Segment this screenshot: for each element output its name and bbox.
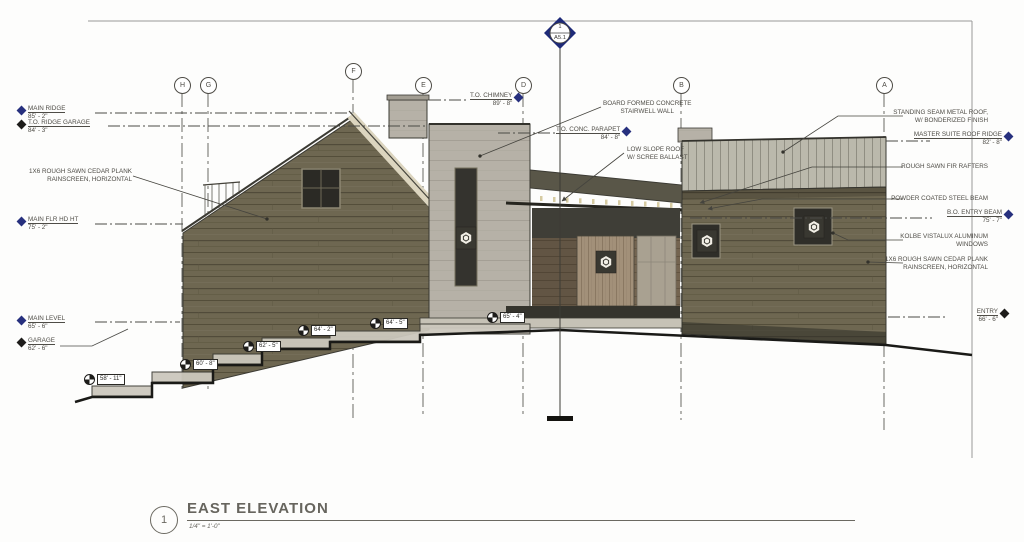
callout-standing-seam-roof: STANDING SEAM METAL ROOF, W/ BONDERIZED … xyxy=(885,109,988,124)
callout-cedar-rainscreen-right: 1X6 ROUGH SAWN CEDAR PLANK RAINSCREEN, H… xyxy=(885,256,988,271)
title-underline xyxy=(187,520,855,521)
callout-text: 1X6 ROUGH SAWN CEDAR PLANK xyxy=(28,168,132,176)
grid-letter: B xyxy=(679,82,684,89)
callout-cedar-rainscreen-left: 1X6 ROUGH SAWN CEDAR PLANK RAINSCREEN, H… xyxy=(28,168,132,183)
datum-value: 62' - 6" xyxy=(28,345,55,352)
datum-diamond-icon xyxy=(1000,309,1010,319)
datum-label: ENTRY xyxy=(977,308,998,316)
view-number-bubble: 1 xyxy=(150,506,178,534)
spot-dim-tag: 65' - 4" xyxy=(487,312,525,323)
datum-garage: GARAGE 62' - 6" xyxy=(18,337,55,352)
callout-kolbe-windows: KOLBE VISTALUX ALUMINUM WINDOWS xyxy=(885,233,988,248)
callout-text: WINDOWS xyxy=(885,241,988,249)
grid-letter: A xyxy=(882,82,887,89)
datum-entry: ENTRY 66' - 6" xyxy=(950,308,1008,323)
grid-bubble-g: G xyxy=(200,77,217,94)
spot-dim-value: 64' - 2" xyxy=(311,325,336,336)
spot-dim-tag: 58' - 11" xyxy=(84,374,125,385)
elevation-drawing xyxy=(0,0,1024,542)
survey-target-icon xyxy=(180,359,191,370)
datum-main-level: MAIN LEVEL 65' - 6" xyxy=(18,315,65,330)
datum-value: 65' - 6" xyxy=(28,323,65,330)
datum-label: T.O. RIDGE GARAGE xyxy=(28,119,90,127)
datum-label: T.O. CONC. PARAPET xyxy=(556,126,620,134)
datum-to-ridge-garage: T.O. RIDGE GARAGE 84' - 3" xyxy=(18,119,90,134)
callout-low-slope-roof: LOW SLOPE ROOF W/ SCREE BALLAST xyxy=(627,146,688,161)
spot-dim-value: 58' - 11" xyxy=(97,374,125,385)
datum-value: 89' - 8" xyxy=(470,100,512,107)
view-scale: 1/4" = 1'-0" xyxy=(189,523,220,530)
datum-diamond-icon xyxy=(1004,132,1014,142)
view-title: EAST ELEVATION xyxy=(187,500,329,517)
datum-label: MAIN LEVEL xyxy=(28,315,65,323)
section-marker-detail-number: 1 xyxy=(545,24,575,30)
datum-diamond-icon xyxy=(17,120,27,130)
datum-bo-entry-beam: B.O. ENTRY BEAM 75' - 7" xyxy=(908,209,1012,224)
datum-diamond-icon xyxy=(17,106,27,116)
grid-bubble-f: F xyxy=(345,63,362,80)
callout-fir-rafters: ROUGH SAWN FIR RAFTERS xyxy=(885,163,988,171)
spot-dim-value: 64' - 5" xyxy=(383,318,408,329)
grid-letter: F xyxy=(351,68,355,75)
callout-text: LOW SLOPE ROOF xyxy=(627,146,688,154)
callout-text: W/ BONDERIZED FINISH xyxy=(885,117,988,125)
spot-dim-tag: 60' - 8" xyxy=(180,359,218,370)
datum-value: 84' - 3" xyxy=(28,127,90,134)
spot-dim-value: 60' - 8" xyxy=(193,359,218,370)
datum-label: MAIN RIDGE xyxy=(28,105,65,113)
grid-letter: H xyxy=(180,82,185,89)
callout-text: POWDER COATED STEEL BEAM xyxy=(885,195,988,203)
callout-text: 1X6 ROUGH SAWN CEDAR PLANK xyxy=(885,256,988,264)
callout-board-formed-concrete: BOARD FORMED CONCRETE STAIRWELL WALL xyxy=(603,100,692,115)
spot-dim-tag: 64' - 5" xyxy=(370,318,408,329)
datum-diamond-icon xyxy=(17,316,27,326)
callout-text: RAINSCREEN, HORIZONTAL xyxy=(28,176,132,184)
callout-steel-beam: POWDER COATED STEEL BEAM xyxy=(885,195,988,203)
view-number: 1 xyxy=(161,514,167,526)
datum-label: GARAGE xyxy=(28,337,55,345)
datum-to-conc-parapet: T.O. CONC. PARAPET 84' - 8" xyxy=(556,126,630,141)
spot-dim-tag: 64' - 2" xyxy=(298,325,336,336)
datum-label: B.O. ENTRY BEAM xyxy=(947,209,1002,217)
grid-letter: E xyxy=(421,82,426,89)
datum-value: 66' - 6" xyxy=(978,316,998,323)
datum-value: 75' - 7" xyxy=(982,217,1002,224)
spot-dim-tag: 62' - 5" xyxy=(243,341,281,352)
callout-text: KOLBE VISTALUX ALUMINUM xyxy=(885,233,988,241)
datum-diamond-icon xyxy=(514,93,524,103)
survey-target-icon xyxy=(370,318,381,329)
elevation-sheet: 1 A5.1 H G F E D B A MAIN RIDGE 85' - 2"… xyxy=(0,0,1024,542)
datum-label: T.O. CHIMNEY xyxy=(470,92,512,100)
grid-bubble-e: E xyxy=(415,77,432,94)
datum-main-flr-hd-ht: MAIN FLR HD HT 75' - 2" xyxy=(18,216,78,231)
datum-main-ridge: MAIN RIDGE 85' - 2" xyxy=(18,105,65,120)
grid-bubble-a: A xyxy=(876,77,893,94)
survey-target-icon xyxy=(298,325,309,336)
grid-bubble-b: B xyxy=(673,77,690,94)
survey-target-icon xyxy=(84,374,95,385)
grid-letter: G xyxy=(206,82,211,89)
callout-text: W/ SCREE BALLAST xyxy=(627,154,688,162)
spot-dim-value: 62' - 5" xyxy=(256,341,281,352)
callout-text: STANDING SEAM METAL ROOF, xyxy=(885,109,988,117)
section-marker-sheet-number: A5.1 xyxy=(545,35,575,41)
datum-to-chimney: T.O. CHIMNEY 89' - 8" xyxy=(470,92,522,107)
datum-value: 84' - 8" xyxy=(556,134,620,141)
datum-master-suite-roof-ridge: MASTER SUITE ROOF RIDGE 82' - 8" xyxy=(890,131,1012,146)
callout-text: ROUGH SAWN FIR RAFTERS xyxy=(885,163,988,171)
datum-label: MAIN FLR HD HT xyxy=(28,216,78,224)
callout-text: STAIRWELL WALL xyxy=(603,108,692,116)
datum-diamond-icon xyxy=(622,127,632,137)
spot-dim-value: 65' - 4" xyxy=(500,312,525,323)
survey-target-icon xyxy=(243,341,254,352)
grid-letter: D xyxy=(521,82,526,89)
callout-text: RAINSCREEN, HORIZONTAL xyxy=(885,264,988,272)
datum-diamond-icon xyxy=(1004,210,1014,220)
datum-diamond-icon xyxy=(17,338,27,348)
callout-text: BOARD FORMED CONCRETE xyxy=(603,100,692,108)
datum-value: 82' - 8" xyxy=(982,139,1002,146)
datum-label: MASTER SUITE ROOF RIDGE xyxy=(914,131,1002,139)
datum-value: 75' - 2" xyxy=(28,224,78,231)
grid-bubble-h: H xyxy=(174,77,191,94)
survey-target-icon xyxy=(487,312,498,323)
datum-diamond-icon xyxy=(17,217,27,227)
